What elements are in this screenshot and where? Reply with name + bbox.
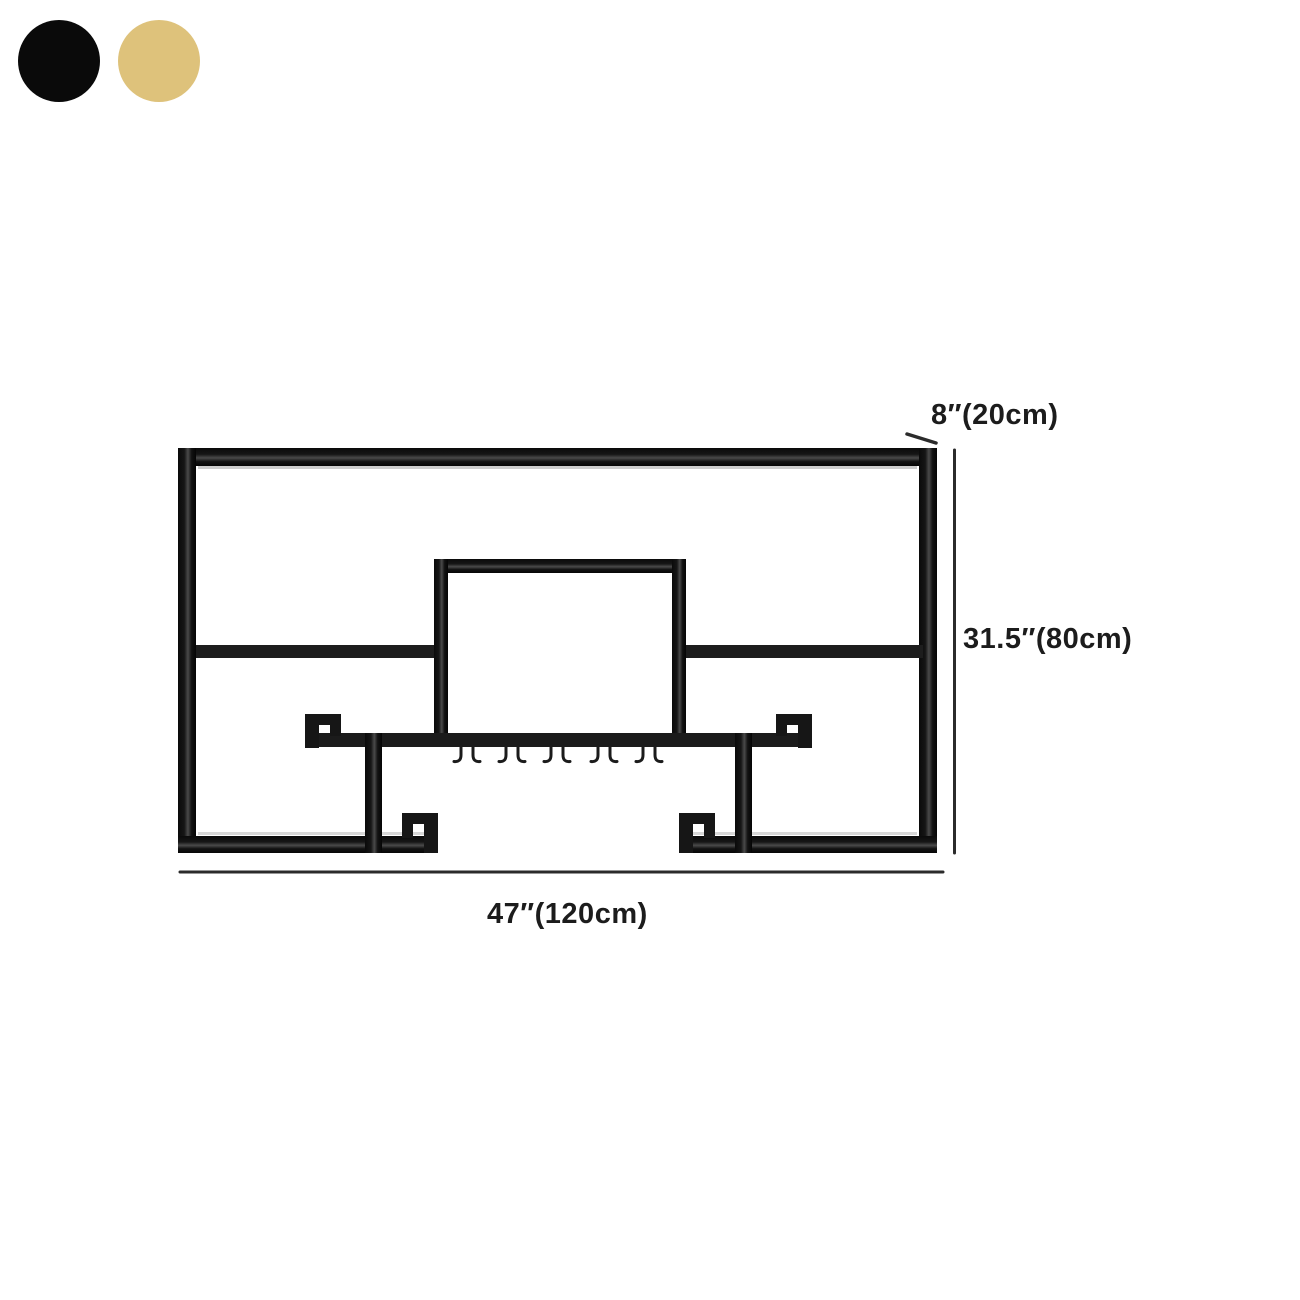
left-post <box>365 733 382 853</box>
dimension-label-height: 31.5″(80cm) <box>963 622 1132 656</box>
center-box <box>434 559 686 747</box>
right-post <box>735 733 752 853</box>
glass-hook <box>655 746 662 762</box>
frame-top-bar <box>178 448 937 466</box>
glass-hook <box>499 746 506 762</box>
bottom-rail-ends <box>402 813 715 853</box>
center-box-top <box>434 559 686 573</box>
glass-hook <box>473 746 480 762</box>
middle-shelf-right <box>684 645 923 658</box>
glass-hook <box>610 746 617 762</box>
hook-rail-bar <box>318 733 799 747</box>
middle-shelf <box>196 645 923 658</box>
glass-hook <box>636 746 643 762</box>
center-box-right <box>672 559 686 747</box>
product-dimension-page: 8″(20cm) 31.5″(80cm) 47″(120cm) <box>0 0 1300 1300</box>
glass-hook <box>563 746 570 762</box>
frame-bottom-left-highlight <box>198 832 436 835</box>
glass-hook <box>518 746 525 762</box>
frame-left-bar <box>178 448 196 853</box>
rail-end-left-stub <box>330 714 341 736</box>
depth-tick-line <box>907 434 936 443</box>
glass-hook <box>454 746 461 762</box>
frame-top-highlight <box>198 466 917 469</box>
dimension-label-width: 47″(120cm) <box>487 897 648 931</box>
bottom-end-left-stub <box>402 813 413 838</box>
frame-bottom-right-highlight <box>681 832 917 835</box>
middle-shelf-left <box>196 645 436 658</box>
glass-hook <box>591 746 598 762</box>
frame-bottom-right-bar <box>679 836 937 853</box>
rail-end-right-stub <box>776 714 787 736</box>
bottom-end-right-stub <box>704 813 715 838</box>
dimension-label-depth: 8″(20cm) <box>931 398 1059 432</box>
stemware-hooks <box>454 746 662 762</box>
frame-bottom-left-bar <box>178 836 438 853</box>
glass-hook <box>544 746 551 762</box>
center-box-left <box>434 559 448 747</box>
